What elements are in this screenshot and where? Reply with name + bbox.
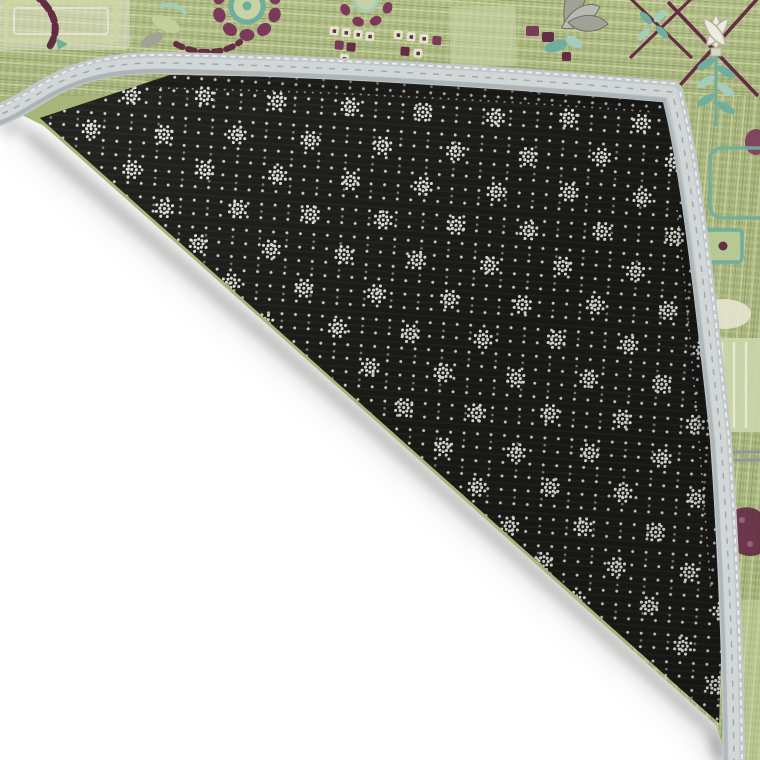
rug-product-photo xyxy=(0,0,760,760)
binding-band xyxy=(0,63,734,760)
binding-highlight xyxy=(0,63,734,760)
binding-seam-stitch xyxy=(0,63,734,760)
edge-binding xyxy=(0,0,760,760)
